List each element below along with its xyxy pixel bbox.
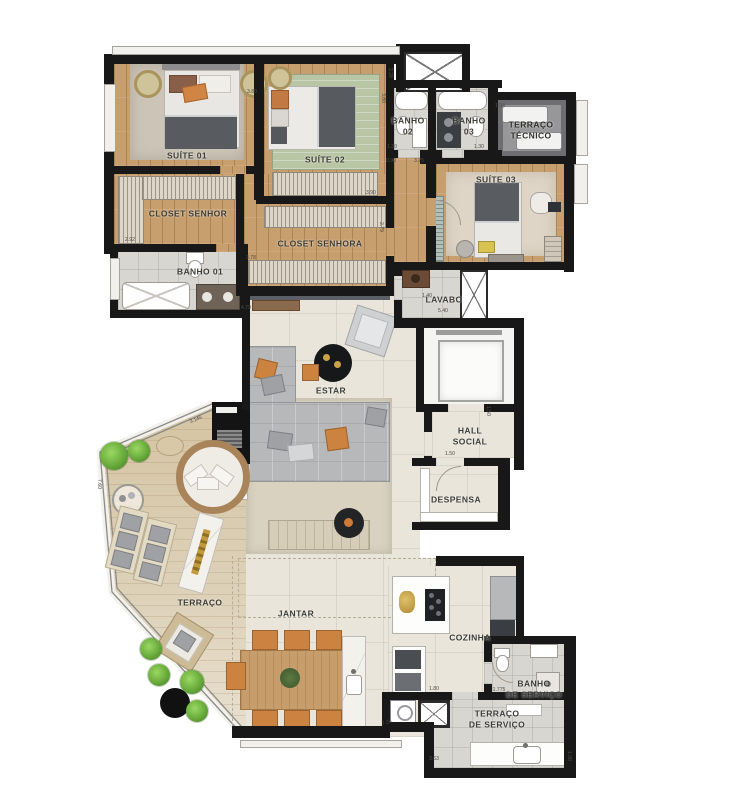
wall <box>110 310 248 318</box>
dimension-label: 1.08 <box>566 751 571 761</box>
blanket <box>165 115 237 149</box>
wall <box>412 522 508 530</box>
pillow <box>271 90 289 109</box>
exterior-notch <box>420 528 498 558</box>
wall <box>490 92 576 100</box>
wall <box>514 412 524 470</box>
bed-suite02 <box>268 86 356 150</box>
exterior-ledge <box>240 740 402 748</box>
exterior-ledge <box>574 164 588 204</box>
tall-cabinets <box>392 646 426 698</box>
dimension-label: 3.90 <box>366 190 376 195</box>
plant <box>148 664 170 686</box>
dining-chair <box>284 630 310 650</box>
door-opening <box>452 692 478 700</box>
room-label-closet-senhor: CLOSET SENHOR <box>149 209 227 220</box>
room-label-jantar: JANTAR <box>278 609 314 620</box>
coffee-table <box>314 344 352 382</box>
burner <box>436 599 441 604</box>
floor-plan: SUÍTE 01 SUÍTE 02 SUÍTE 03 CLOSET SENHOR… <box>0 0 744 800</box>
wardrobe-closet-senhora <box>248 260 386 284</box>
fridge <box>490 576 517 620</box>
bedside-pouf <box>268 66 292 90</box>
dimension-label: 1.40 <box>422 293 432 298</box>
candle <box>323 354 330 361</box>
dining-chair <box>226 662 246 690</box>
wall <box>498 458 510 530</box>
wall <box>428 84 436 154</box>
floor-corridor <box>394 158 426 262</box>
window <box>110 258 120 300</box>
dimension-label: 4.79 <box>241 305 251 310</box>
elevator-opening <box>448 404 484 412</box>
burner <box>429 605 434 610</box>
washing-machine <box>390 700 416 724</box>
door-opening <box>220 166 246 174</box>
shower-banho03 <box>438 91 487 110</box>
dimension-label: 2.92 <box>125 237 135 242</box>
blanket <box>317 87 355 147</box>
console-table <box>178 512 224 594</box>
dimension-label: 1.30 <box>387 144 397 149</box>
wall <box>416 326 424 412</box>
decor <box>344 518 353 527</box>
round-side-table <box>334 508 364 538</box>
tv <box>548 202 561 212</box>
plant <box>100 442 128 470</box>
burner <box>429 593 434 598</box>
wall <box>236 286 394 296</box>
chaise-cushion <box>143 543 166 563</box>
room-label-cozinha: COZINHA <box>449 633 491 644</box>
cooktop <box>425 589 445 621</box>
bathtub <box>122 282 190 310</box>
dimension-label: 7.60 <box>96 479 101 489</box>
open-boundary <box>232 556 234 726</box>
dimension-label: 3.63 <box>429 756 439 761</box>
dimension-label: 3.145 <box>189 415 203 425</box>
room-label-suite03: SUÍTE 03 <box>476 175 516 186</box>
bed-suite01 <box>164 70 240 148</box>
round-daybed <box>176 440 250 514</box>
pillow <box>365 406 388 427</box>
dining-chair <box>252 630 278 650</box>
door-opening <box>442 150 464 158</box>
island-sink <box>346 675 362 695</box>
door-opening <box>386 228 394 256</box>
kitchen-island <box>342 636 366 728</box>
exterior-ledge <box>112 46 400 55</box>
chaise-cushion <box>120 512 143 532</box>
elevator-doors <box>436 330 502 335</box>
door-opening <box>216 244 236 252</box>
dimension-label: 1.94 <box>495 103 505 108</box>
elevator-cab <box>438 340 504 402</box>
lavabo-counter <box>402 270 430 288</box>
room-label-despensa: DESPENSA <box>431 495 481 506</box>
faucet <box>351 669 356 674</box>
laundry-counter <box>470 742 566 766</box>
door-opening <box>484 662 492 684</box>
burner <box>436 611 441 616</box>
double-vanity <box>196 284 240 310</box>
bed-suite03 <box>474 182 522 258</box>
wardrobe-closet-senhor <box>118 176 144 244</box>
bedside-pouf <box>134 70 162 98</box>
wall <box>394 318 524 328</box>
pantry-shelf <box>420 512 498 522</box>
washer-drum <box>397 705 413 721</box>
dimension-label: 3.75 <box>414 158 424 163</box>
door-opening <box>424 432 432 456</box>
blanket <box>475 183 519 223</box>
shower-banho02 <box>395 91 428 110</box>
chaise-cushion <box>148 524 171 544</box>
window <box>104 84 116 152</box>
sink-basin <box>411 274 420 283</box>
wall <box>564 156 574 272</box>
decor-gold <box>191 529 210 575</box>
dimension-label: 5.40 <box>438 308 448 313</box>
room-label-terraco: TERRAÇO <box>178 598 223 609</box>
chaise-cushion <box>139 561 162 581</box>
decor-gold <box>399 591 415 613</box>
room-label-closet-senhora: CLOSET SENHORA <box>278 239 363 250</box>
pillow <box>325 427 350 452</box>
pouf <box>156 436 184 456</box>
wall <box>564 692 576 778</box>
wall <box>236 166 244 294</box>
tv-console <box>252 300 300 311</box>
room-label-suite02: SUÍTE 02 <box>305 155 345 166</box>
decor <box>128 492 135 499</box>
appliance-front <box>395 650 421 669</box>
door-opening <box>394 276 402 300</box>
pillow <box>271 109 289 127</box>
exterior-ledge <box>576 100 588 156</box>
laundry-tank <box>513 746 541 764</box>
wall <box>566 92 576 164</box>
room-label-banho03: BANHO 03 <box>452 115 485 136</box>
dining-chair <box>316 630 342 650</box>
door-opening <box>436 458 464 466</box>
floor-lamp <box>456 240 474 258</box>
wall <box>436 556 524 566</box>
wall <box>386 80 502 88</box>
chaise-cushion <box>115 531 138 551</box>
wall <box>516 556 524 644</box>
room-label-estar: ESTAR <box>316 386 346 397</box>
bookshelf <box>544 236 562 262</box>
pillow <box>287 443 315 463</box>
room-label-terraco-servico: TERRAÇO DE SERVIÇO <box>469 708 525 729</box>
dimension-label: 1.30 <box>474 144 484 149</box>
dimension-label: 3.80 <box>247 89 257 94</box>
dimension-label: 1.80 <box>429 686 439 691</box>
appliance-front <box>395 673 421 691</box>
plant <box>186 700 208 722</box>
room-label-banho01: BANHO 01 <box>177 267 223 278</box>
dimension-label: 0.90 <box>386 158 396 163</box>
plant <box>128 440 150 462</box>
candle <box>334 361 341 368</box>
faucet <box>523 743 528 748</box>
kitchen-counter <box>392 576 450 634</box>
pillow <box>182 83 208 103</box>
door-opening <box>426 198 436 226</box>
dimension-label: 2.28 <box>387 68 392 78</box>
side-table <box>302 364 319 381</box>
pillow <box>478 241 495 253</box>
wall <box>484 636 576 644</box>
table-plant <box>280 668 300 688</box>
chaise-cushion <box>111 549 134 569</box>
wardrobe-suite02 <box>272 172 378 196</box>
dimension-label: 3.78 <box>246 255 256 260</box>
pillow <box>271 127 287 144</box>
wall <box>424 768 576 778</box>
wall <box>388 692 450 700</box>
dimension-label: 3.80 <box>380 93 385 103</box>
outdoor-armchair <box>154 612 215 673</box>
sink-basin <box>202 292 212 302</box>
door-opening <box>398 150 420 158</box>
room-label-suite01: SUÍTE 01 <box>167 151 207 162</box>
wall <box>514 318 524 414</box>
wall <box>256 196 394 204</box>
plant <box>140 638 162 660</box>
room-label-banho-servico: BANHO DE SERVIÇO <box>506 678 562 699</box>
sink-basin <box>223 292 233 302</box>
wardrobe-closet-senhor <box>142 176 240 200</box>
dimension-label: 1.775 <box>493 687 506 692</box>
decor <box>119 495 126 502</box>
wall <box>394 262 574 270</box>
duct-shaft-icon <box>460 270 488 320</box>
wall <box>396 44 470 52</box>
wardrobe-closet-senhora <box>264 206 386 228</box>
room-label-terraco-tecnico: TERRAÇO TÉCNICO <box>509 119 554 140</box>
room-label-hall-social: HALL SOCIAL <box>453 425 488 446</box>
wall <box>254 54 264 200</box>
wall <box>386 54 394 294</box>
dimension-label: 1.50 <box>445 451 455 456</box>
grill-shelf <box>216 407 237 413</box>
wall <box>232 726 390 738</box>
room-label-banho02: BANHO 02 <box>391 115 424 136</box>
armchair-cushion <box>353 313 388 348</box>
dimension-label: 1.50 <box>485 406 490 416</box>
dimension-label: 2.79 <box>378 222 383 232</box>
service-sink <box>530 644 558 658</box>
